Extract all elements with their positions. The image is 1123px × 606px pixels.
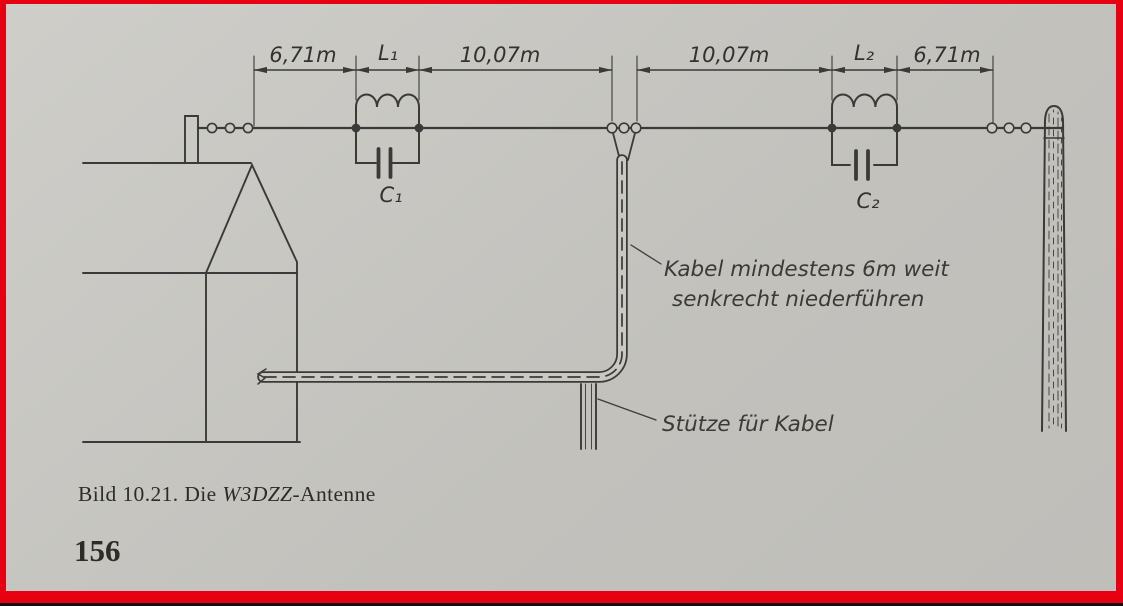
antenna-diagram: 6,71m L₁ 10,07m 10,07m L₂ 6,71m C₁ C₂ Ka…	[0, 0, 1123, 606]
dim-right-outer-label: 6,71m	[913, 43, 980, 67]
cable-annotation-line2: senkrecht niederführen	[672, 287, 924, 312]
house-gable	[206, 165, 297, 273]
insulator-left-1	[207, 123, 216, 132]
trap1	[353, 94, 423, 177]
trap1-node-right	[416, 125, 423, 132]
cable-inner	[263, 160, 622, 377]
page-number: 156	[74, 533, 121, 569]
inductor2-coil	[832, 94, 897, 128]
support-note-leader	[598, 399, 656, 420]
trap2	[829, 94, 901, 179]
cable-note-leader	[631, 245, 661, 264]
dim-left-outer-label: 6,71m	[269, 43, 336, 67]
insulator-right-2	[1004, 123, 1014, 133]
cable-annotation-line1: Kabel mindestens 6m weit	[664, 257, 950, 282]
cable-outer	[263, 160, 622, 377]
capacitor2-label: C₂	[856, 189, 880, 213]
insulator-right-3	[1021, 123, 1031, 133]
chimney	[185, 116, 198, 163]
mast-outline	[1042, 106, 1066, 431]
house	[83, 116, 300, 442]
caption-text: Bild 10.21. Die	[78, 482, 222, 506]
insulator-right-1	[987, 123, 997, 133]
trap2-node-left	[829, 125, 836, 132]
caption-antenna-name: W3DZZ	[222, 482, 292, 506]
trap2-node-right	[894, 125, 901, 132]
support-annotation: Stütze für Kabel	[662, 412, 834, 437]
inductor1-coil	[356, 94, 419, 128]
insulator-center-2	[619, 123, 629, 133]
capacitor1-branch	[356, 128, 419, 163]
capacitor2-branch	[832, 128, 897, 165]
dim-left-span-label: 10,07m	[460, 43, 541, 67]
inductor2-label: L₂	[854, 41, 875, 65]
figure-caption: Bild 10.21. Die W3DZZ-Antenne	[78, 482, 376, 507]
insulator-left-2	[225, 123, 234, 132]
cable-support-post	[581, 384, 596, 449]
mast-wood-hatching	[1049, 110, 1062, 428]
feedline-cable	[258, 160, 622, 384]
insulator-center-3	[631, 123, 641, 133]
trap1-node-left	[353, 125, 360, 132]
mast	[1042, 106, 1066, 431]
caption-suffix: -Antenne	[292, 482, 375, 506]
dim-right-span-label: 10,07m	[689, 43, 770, 67]
capacitor1-label: C₁	[379, 183, 402, 207]
inductor1-label: L₁	[378, 41, 398, 65]
insulator-center-1	[607, 123, 617, 133]
insulator-left-3	[243, 123, 252, 132]
dimension-extension-lines	[254, 56, 993, 130]
cable-dashed-center	[263, 162, 622, 377]
